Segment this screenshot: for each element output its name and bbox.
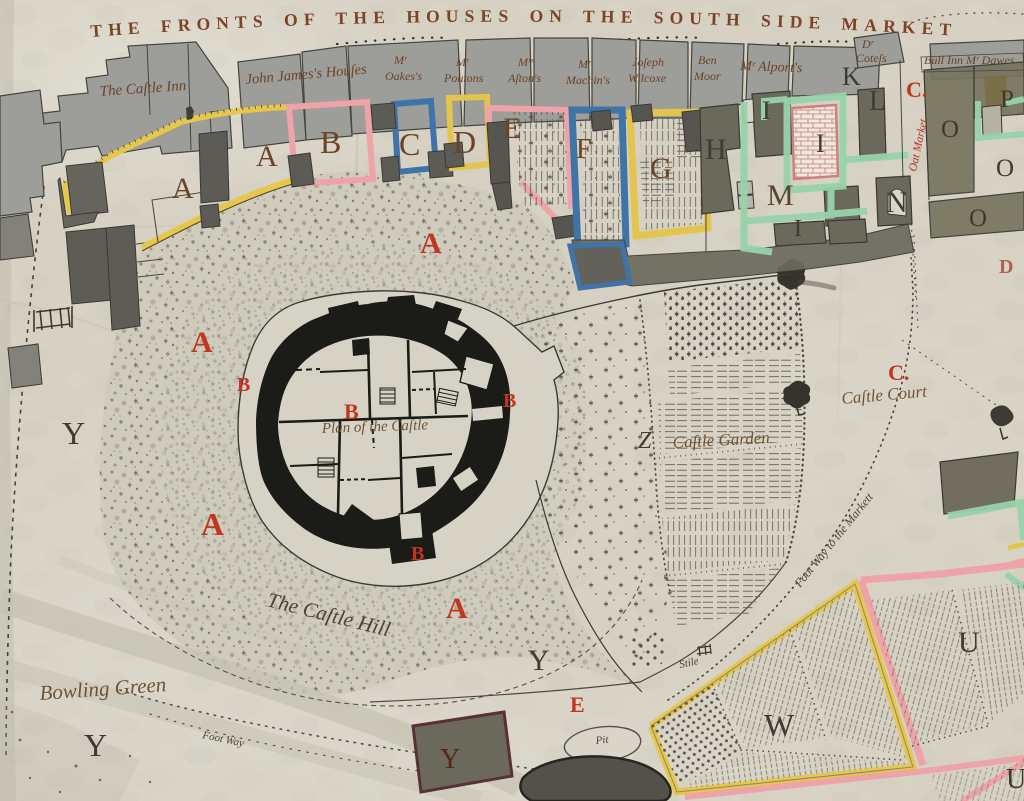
svg-text:M: M [767, 179, 794, 212]
svg-text:Dʳ: Dʳ [861, 37, 875, 51]
svg-text:I: I [794, 216, 802, 242]
svg-text:L: L [869, 86, 886, 117]
svg-text:A: A [172, 172, 194, 205]
svg-text:U: U [1006, 764, 1024, 795]
svg-text:Pit: Pit [594, 734, 610, 747]
svg-text:Mʳ: Mʳ [455, 55, 470, 69]
svg-text:Mʳ Alport's: Mʳ Alport's [739, 59, 803, 76]
svg-text:Joſeph: Joſeph [632, 55, 664, 69]
svg-text:H: H [705, 133, 727, 166]
svg-text:A: A [191, 326, 213, 359]
svg-text:Oakes's: Oakes's [385, 69, 423, 83]
svg-text:Mʳ: Mʳ [577, 57, 592, 71]
svg-text:Machin's: Machin's [565, 73, 610, 87]
svg-text:Poutons: Poutons [443, 71, 484, 85]
svg-text:B: B [237, 374, 250, 396]
svg-text:I: I [816, 129, 825, 158]
svg-text:I: I [762, 96, 771, 125]
svg-text:Y: Y [528, 644, 550, 677]
svg-text:D: D [999, 256, 1013, 278]
svg-text:O: O [969, 205, 987, 232]
svg-text:Y: Y [84, 727, 107, 763]
svg-text:G: G [650, 152, 672, 185]
svg-text:Ben: Ben [698, 53, 717, 67]
svg-text:E: E [503, 112, 521, 145]
svg-text:P: P [1000, 86, 1014, 113]
svg-text:Wilcoxe: Wilcoxe [628, 71, 667, 85]
svg-text:Mʳ: Mʳ [393, 53, 408, 67]
svg-text:O: O [996, 155, 1014, 182]
svg-text:A: A [446, 592, 468, 625]
svg-text:Aſton's: Aſton's [507, 71, 542, 85]
svg-text:E: E [570, 692, 585, 717]
svg-text:F: F [576, 134, 592, 165]
svg-text:U: U [958, 626, 980, 659]
svg-text:A: A [420, 227, 442, 260]
svg-text:Moor: Moor [693, 69, 721, 83]
svg-text:B: B [320, 124, 341, 160]
svg-text:Z: Z [638, 428, 652, 454]
svg-text:K: K [842, 62, 861, 91]
svg-text:Y: Y [62, 415, 85, 451]
svg-text:C.: C. [906, 77, 927, 102]
svg-text:W: W [764, 707, 795, 743]
svg-text:Y: Y [440, 744, 460, 775]
svg-text:Mʳˢ: Mʳˢ [517, 55, 534, 69]
svg-text:B: B [503, 390, 516, 412]
svg-text:N: N [886, 186, 908, 219]
svg-text:D: D [453, 124, 476, 160]
svg-text:C.: C. [888, 360, 909, 385]
svg-text:O: O [941, 116, 959, 143]
svg-text:A: A [201, 506, 224, 542]
svg-text:C: C [399, 126, 420, 162]
svg-text:B: B [411, 543, 424, 565]
svg-text:A: A [256, 140, 278, 173]
